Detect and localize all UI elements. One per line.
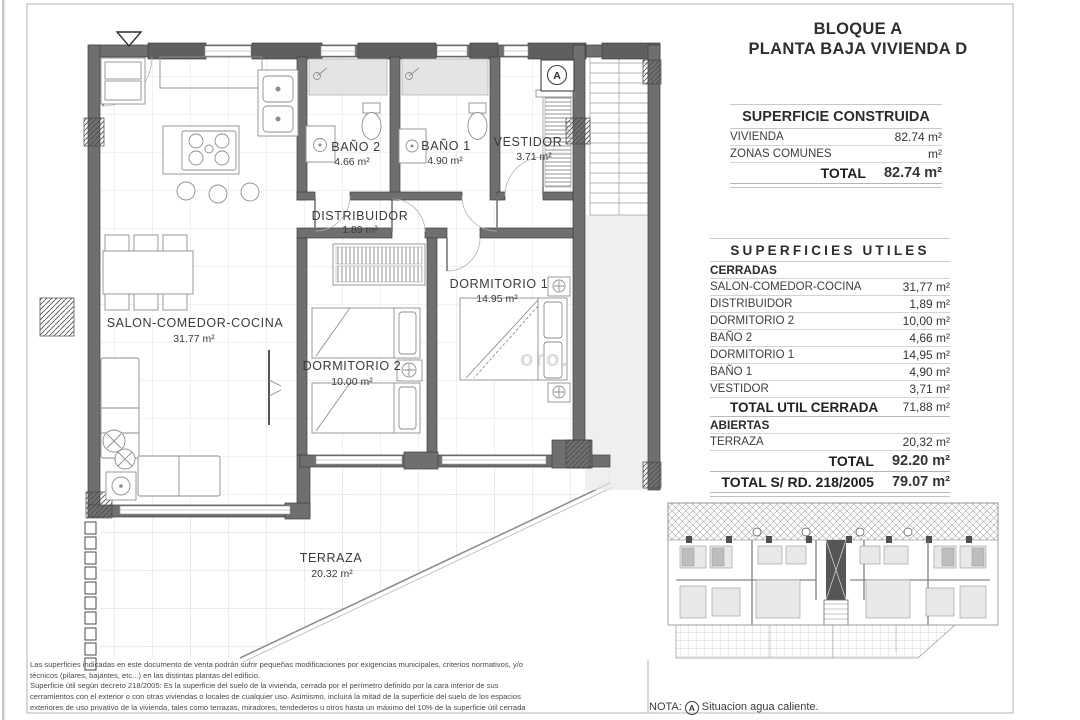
sheet-title: BLOQUE A PLANTA BAJA VIVIENDA D [700, 20, 1016, 59]
note-text: Situacion agua caliente. [702, 701, 819, 713]
total-closed-row: TOTAL UTIL CERRADA71,88 m² [710, 398, 950, 417]
watermark: oro. [520, 346, 570, 371]
double-rule [710, 493, 950, 497]
row-label: DISTRIBUIDOR [710, 298, 792, 310]
row-label: TERRAZA [710, 436, 764, 448]
dining-furniture [103, 235, 193, 310]
useful-surfaces-table: SUPERFICIES UTILES CERRADAS SALON-COMEDO… [710, 238, 950, 497]
room-label: VESTIDOR [494, 135, 563, 149]
total-value: 71,88 m² [903, 400, 950, 414]
hot-water-letter: A [553, 70, 561, 82]
room-area: 20.32 m² [311, 568, 353, 580]
table-row: DISTRIBUIDOR1,89 m² [710, 296, 950, 313]
room-label: BAÑO 1 [421, 139, 470, 153]
room-area: 31.77 m² [173, 333, 215, 345]
dining-table [103, 251, 193, 294]
circled-a-icon: A [685, 701, 699, 715]
room-label: SALON-COMEDOR-COCINA [107, 316, 284, 330]
room-area: 1.89 m² [342, 224, 378, 236]
room-label: TERRAZA [300, 551, 363, 565]
total-label: TOTAL [821, 165, 866, 181]
plan-sheet: A oro. BAÑO 2 4.66 m² BAÑO 1 4.90 m² VES… [0, 0, 1080, 720]
block-name: BLOQUE A [700, 20, 1016, 40]
terrace-posts [85, 522, 96, 670]
legal-disclaimer: Las superficies indicadas en este docume… [30, 660, 526, 714]
row-label: VESTIDOR [710, 383, 769, 395]
total-row: TOTAL 82.74 m² [730, 163, 942, 184]
section-row: CERRADAS [710, 262, 950, 279]
row-value: 3,71 m² [909, 382, 950, 396]
built-surface-table: SUPERFICIE CONSTRUIDA VIVIENDA 82.74 m² … [730, 104, 942, 188]
table-row: SALON-COMEDOR-COCINA31,77 m² [710, 279, 950, 296]
total-value: 82.74 m² [884, 165, 942, 181]
row-value: 20,32 m² [903, 435, 950, 449]
row-label: SALON-COMEDOR-COCINA [710, 281, 861, 293]
room-area: 14.95 m² [476, 293, 518, 305]
row-value: 1,89 m² [909, 297, 950, 311]
kitchen-island [163, 126, 239, 174]
row-label: BAÑO 2 [710, 332, 752, 344]
room-area: 10.00 m² [331, 376, 373, 388]
double-rule [730, 184, 942, 188]
row-value: 4,90 m² [909, 365, 950, 379]
note-prefix: NOTA: [649, 701, 682, 713]
table-row: VESTIDOR3,71 m² [710, 381, 950, 398]
key-plan-terraces [676, 625, 955, 658]
key-plan [668, 503, 998, 658]
section-row: ABIERTAS [710, 417, 950, 434]
total-row: TOTAL92.20 m² [710, 451, 950, 472]
room-area: 4.66 m² [334, 156, 370, 168]
section-label: ABIERTAS [710, 418, 769, 432]
row-value: 31,77 m² [903, 280, 950, 294]
total-rd-label: TOTAL S/ RD. 218/2005 [721, 474, 874, 490]
row-value: 82.74 m² [895, 130, 942, 144]
table-row: TERRAZA20,32 m² [710, 434, 950, 451]
total-value: 92.20 m² [892, 453, 950, 469]
built-surface-header: SUPERFICIE CONSTRUIDA [730, 104, 942, 129]
row-value: 4,66 m² [909, 331, 950, 345]
section-label: CERRADAS [710, 263, 777, 277]
entrance-arrow-icon [117, 32, 141, 46]
row-value: m² [928, 147, 942, 161]
total-rd-row: TOTAL S/ RD. 218/200579.07 m² [710, 472, 950, 493]
row-label: ZONAS COMUNES [730, 148, 832, 160]
room-area: 3.71 m² [516, 151, 552, 163]
total-label: TOTAL UTIL CERRADA [710, 400, 878, 415]
room-label: DORMITORIO 1 [450, 277, 549, 291]
disclaimer-line: técnicos (pilares, bajantes, etc...) en … [30, 671, 526, 682]
hot-water-note: NOTA:ASituacion agua caliente. [649, 701, 819, 715]
row-value: 10,00 m² [903, 314, 950, 328]
room-label: BAÑO 2 [331, 140, 380, 154]
disclaimer-line: cerramientos con el exterior o con otras… [30, 692, 526, 703]
room-label: DISTRIBUIDOR [312, 209, 409, 223]
table-row: DORMITORIO 114,95 m² [710, 347, 950, 364]
room-area: 4.90 m² [427, 155, 463, 167]
table-row: BAÑO 14,90 m² [710, 364, 950, 381]
useful-surfaces-header: SUPERFICIES UTILES [710, 238, 950, 262]
room-label: DORMITORIO 2 [303, 359, 402, 373]
disclaimer-line: exteriores de uso privativo de la vivien… [30, 703, 526, 714]
disclaimer-line: Las superficies indicadas en este docume… [30, 660, 526, 671]
table-row: ZONAS COMUNES m² [730, 146, 942, 163]
total-rd-value: 79.07 m² [892, 474, 950, 490]
table-row: DORMITORIO 210,00 m² [710, 313, 950, 330]
table-row: VIVIENDA 82.74 m² [730, 129, 942, 146]
table-row: BAÑO 24,66 m² [710, 330, 950, 347]
row-label: DORMITORIO 1 [710, 349, 794, 361]
total-label: TOTAL [829, 453, 874, 469]
row-value: 14,95 m² [903, 348, 950, 362]
disclaimer-line: Superficie útil según decreto 218/2005: … [30, 681, 526, 692]
row-label: BAÑO 1 [710, 366, 752, 378]
row-label: VIVIENDA [730, 131, 784, 143]
row-label: DORMITORIO 2 [710, 315, 794, 327]
communal-stairs [590, 55, 648, 215]
floor-dwelling-name: PLANTA BAJA VIVIENDA D [700, 40, 1016, 60]
